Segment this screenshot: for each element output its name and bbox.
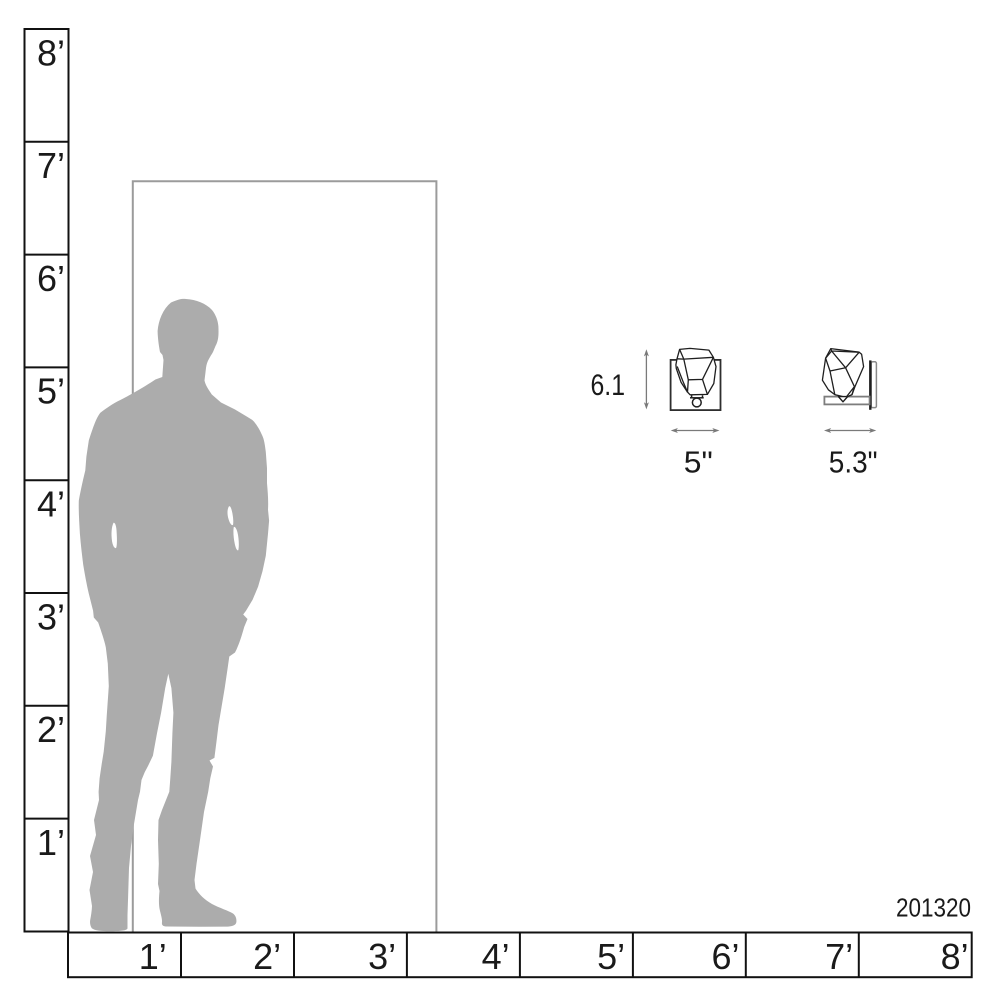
svg-text:5’: 5’ (597, 936, 625, 977)
svg-text:4’: 4’ (482, 936, 510, 977)
svg-text:2’: 2’ (253, 936, 281, 977)
svg-text:8’: 8’ (37, 32, 65, 73)
svg-text:1’: 1’ (139, 936, 167, 977)
svg-text:8’: 8’ (941, 936, 969, 977)
svg-text:6’: 6’ (37, 258, 65, 299)
svg-text:6.1: 6.1 (591, 369, 626, 402)
svg-text:5’: 5’ (37, 371, 65, 412)
svg-text:201320: 201320 (896, 895, 971, 923)
svg-text:3’: 3’ (37, 596, 65, 637)
svg-text:3’: 3’ (368, 936, 396, 977)
svg-text:7’: 7’ (37, 145, 65, 186)
svg-text:6’: 6’ (711, 936, 739, 977)
svg-text:1’: 1’ (37, 822, 65, 863)
svg-text:2’: 2’ (37, 709, 65, 750)
svg-text:5": 5" (684, 444, 713, 479)
svg-text:4’: 4’ (37, 484, 65, 525)
svg-text:7’: 7’ (825, 936, 853, 977)
svg-text:5.3": 5.3" (829, 444, 878, 479)
